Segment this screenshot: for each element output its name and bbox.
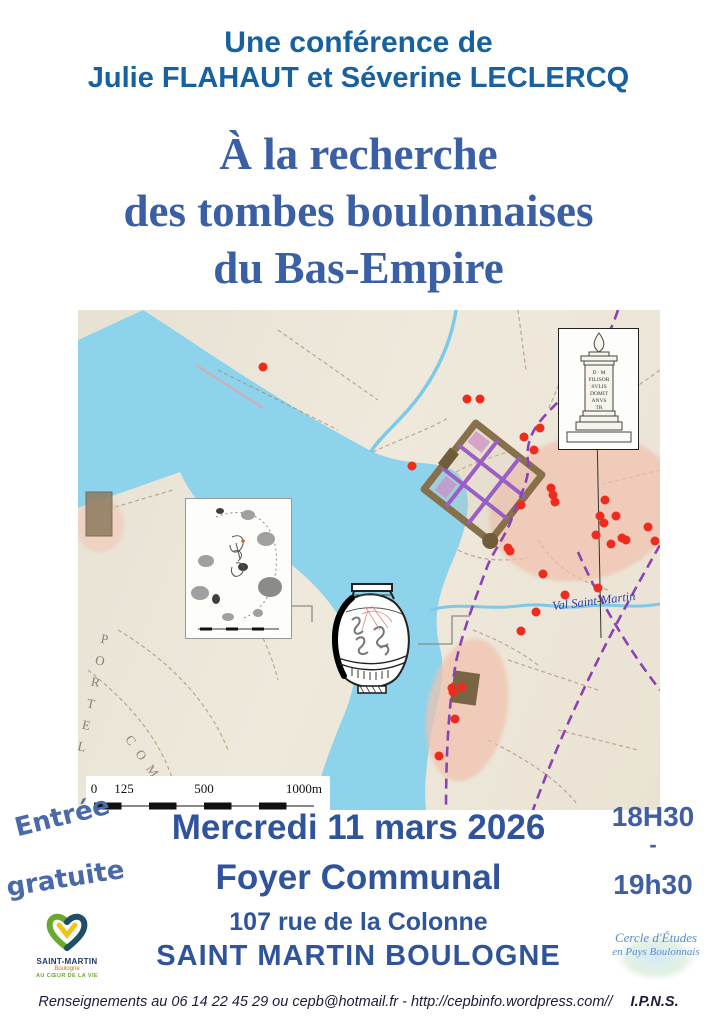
tomb-dot (530, 446, 539, 455)
tomb-dot (532, 608, 541, 617)
tomb-dot (592, 531, 601, 540)
time-end: 19h30 (596, 870, 710, 900)
document-patch (86, 492, 112, 536)
excavation-plan-inset (185, 498, 292, 639)
scale-label-1000: 1000m (286, 781, 322, 796)
tomb-dot (259, 363, 268, 372)
tomb-dot (601, 496, 610, 505)
footer: Renseignements au 06 14 22 45 29 ou cepb… (0, 994, 717, 1010)
saint-martin-logo-sub: Boulogne (24, 966, 110, 972)
saint-martin-logo: SAINT-MARTIN Boulogne AU CŒUR DE LA VIE (24, 912, 110, 979)
footer-ipns: I.P.N.S. (631, 994, 679, 1010)
funerary-stele-inset: D ∙ M FILISOR SVLIS DOMIT ANVS TR (558, 328, 639, 450)
tomb-dot (517, 501, 526, 510)
tomb-dot (607, 540, 616, 549)
conference-poster: Une conférence de Julie FLAHAUT et Séver… (0, 0, 717, 1024)
stele-line: ANVS (592, 398, 607, 404)
tomb-dot (594, 584, 603, 593)
footer-contact: Renseignements au 06 14 22 45 29 ou cepb… (38, 994, 612, 1010)
tomb-dot (622, 536, 631, 545)
decorated-vase-inset (322, 578, 418, 702)
cepb-logo-line2: en Pays Boulonnais (604, 946, 708, 958)
tomb-dot (408, 462, 417, 471)
tomb-dot (612, 512, 621, 521)
heart-icon (44, 912, 90, 952)
cepb-logo-line1: Cercle d'Études (604, 930, 708, 946)
stele-line: TR (595, 405, 602, 411)
time-start: 18H30 (596, 802, 710, 832)
stele-line: FILISOR (589, 377, 610, 383)
stream-north (371, 310, 456, 452)
tomb-dot (520, 433, 529, 442)
scale-label-125: 125 (114, 781, 134, 796)
tomb-dot (551, 498, 560, 507)
event-time: 18H30 - 19h30 (596, 802, 710, 900)
tomb-dot (476, 395, 485, 404)
header-line2: Julie FLAHAUT et Séverine LECLERCQ (0, 60, 717, 96)
saint-martin-logo-tagline: AU CŒUR DE LA VIE (24, 973, 110, 979)
page-title: À la recherche des tombes boulonnaises d… (0, 126, 717, 297)
title-line1: À la recherche (0, 126, 717, 183)
tomb-dot (463, 395, 472, 404)
tomb-dot (600, 519, 609, 528)
vase-drawing (322, 578, 418, 702)
saint-martin-logo-name: SAINT-MARTIN (24, 957, 110, 966)
title-line2: des tombes boulonnaises (0, 183, 717, 240)
tomb-dot (561, 591, 570, 600)
tomb-dot (458, 683, 467, 692)
stele-drawing: D ∙ M FILISOR SVLIS DOMIT ANVS TR (559, 329, 638, 449)
header: Une conférence de Julie FLAHAUT et Séver… (0, 26, 717, 96)
tomb-dot (506, 547, 515, 556)
stele-line: SVLIS (591, 384, 606, 390)
tomb-dot (451, 715, 460, 724)
tomb-dot (651, 537, 660, 546)
header-line1: Une conférence de (0, 26, 717, 60)
tomb-dot (539, 570, 548, 579)
time-separator: - (596, 832, 710, 858)
excavation-plan-drawing (186, 499, 291, 638)
stele-line: D ∙ M (593, 370, 606, 376)
tomb-dot (449, 688, 458, 697)
stele-line: DOMIT (590, 391, 609, 397)
tomb-dot (644, 523, 653, 532)
scale-label-500: 500 (194, 781, 214, 796)
title-line3: du Bas-Empire (0, 240, 717, 297)
tomb-dot (435, 752, 444, 761)
tomb-dot (536, 424, 545, 433)
tomb-dot (517, 627, 526, 636)
archaeological-map: Val Saint-Martin PORTEL COM (78, 310, 660, 810)
cepb-logo: Cercle d'Études en Pays Boulonnais (604, 918, 708, 986)
